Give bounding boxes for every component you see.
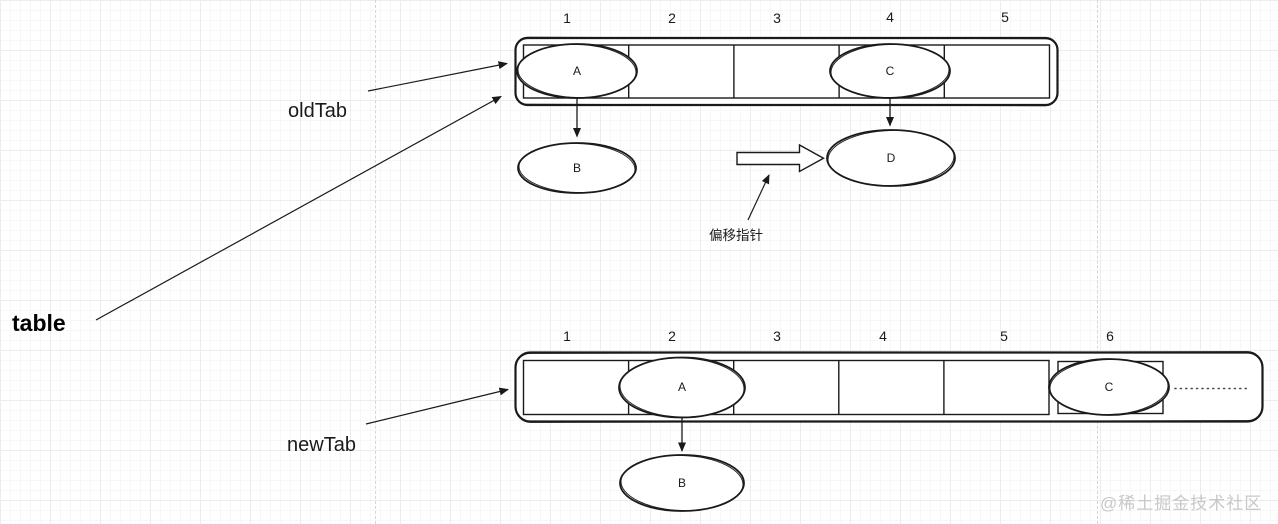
old-node-b-label: B	[573, 161, 581, 175]
new-table-index-2: 2	[668, 328, 676, 344]
old-table-index-3: 3	[773, 10, 781, 26]
juejin-watermark: @稀土掘金技术社区	[1100, 489, 1262, 514]
diagram-shapes	[0, 0, 1278, 524]
new-node-b-label: B	[678, 476, 686, 490]
old-node-d-label: D	[887, 151, 896, 165]
oldtab-label: oldTab	[288, 100, 347, 123]
old-node-c-label: C	[886, 64, 895, 78]
diagram-canvas: 1 2 3 4 5 1 2 3 4 5 6 A C B D A C B oldT…	[0, 0, 1278, 524]
new-table-index-4: 4	[879, 328, 887, 344]
old-table-index-2: 2	[668, 10, 676, 26]
table-label: table	[12, 310, 66, 337]
old-node-a-label: A	[573, 64, 581, 78]
offset-pointer-callout-arrow	[748, 175, 769, 220]
new-table-index-5: 5	[1000, 328, 1008, 344]
newtab-pointer-arrow	[366, 390, 508, 425]
table-pointer-arrow	[96, 97, 501, 321]
offset-pointer-label: 偏移指针	[709, 224, 763, 244]
new-table-index-3: 3	[773, 328, 781, 344]
old-table-index-4: 4	[886, 9, 894, 25]
new-node-c-label: C	[1105, 380, 1114, 394]
oldtab-pointer-arrow	[368, 64, 507, 92]
new-table-index-6: 6	[1106, 328, 1114, 344]
new-node-a-label: A	[678, 380, 686, 394]
new-table-index-1: 1	[563, 328, 571, 344]
old-table-index-5: 5	[1001, 9, 1009, 25]
offset-pointer-block-arrow	[737, 145, 824, 172]
old-table-index-1: 1	[563, 10, 571, 26]
newtab-label: newTab	[287, 434, 356, 457]
